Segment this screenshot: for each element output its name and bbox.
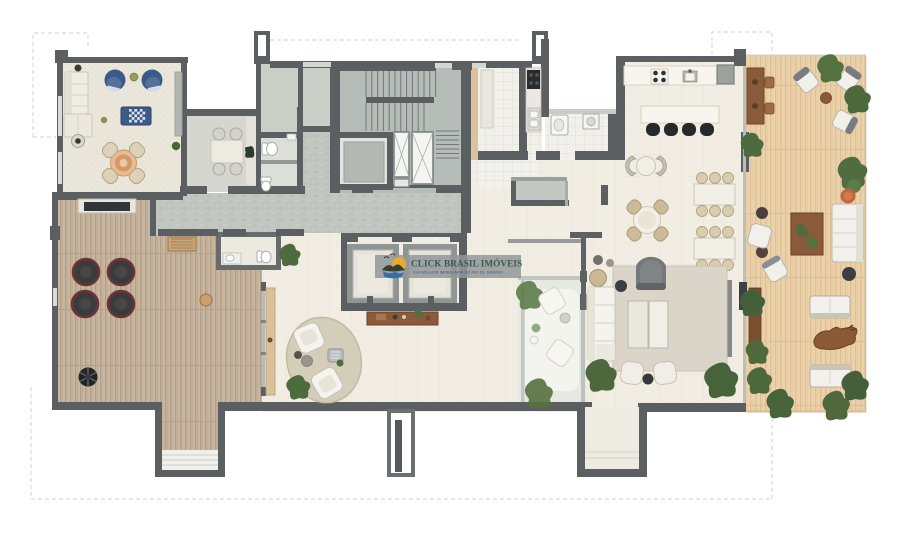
svg-text:SUA MELHOR IMOBILIÁRIA NO RIO: SUA MELHOR IMOBILIÁRIA NO RIO DE JANEIRO bbox=[413, 271, 503, 275]
svg-text:CLICK BRASIL IMÓVEIS: CLICK BRASIL IMÓVEIS bbox=[411, 259, 522, 269]
